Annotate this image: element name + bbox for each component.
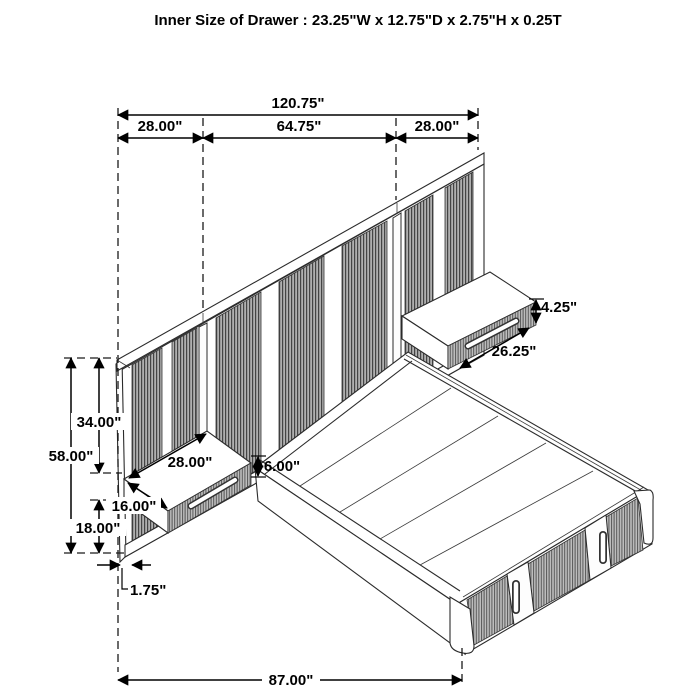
drawing-title: Inner Size of Drawer : 23.25"W x 12.75"D… [154,12,561,29]
dim-label-shelf-depth: 16.00" [112,498,157,515]
dim-label-left-panel-width: 28.00" [138,118,183,135]
dim-label-center-panel-width: 64.75" [277,118,322,135]
dim-label-right-panel-width: 28.00" [415,118,460,135]
dim-label-total-width: 120.75" [272,95,325,112]
dim-label-panel-thickness: 1.75" [130,582,166,599]
dim-label-left-shelf-width: 28.00" [168,454,213,471]
dim-label-bed-length: 87.00" [269,672,314,689]
dim-label-top-to-shelf: 34.00" [77,414,122,431]
dim-label-shelf-to-bottom: 18.00" [76,520,121,537]
technical-drawing-page: 120.75" 28.00" 64.75" 28.00" 58.00" 34.0… [0,0,700,700]
dim-label-shelf-height: 6.00" [264,458,300,475]
furniture-dimension-diagram: 120.75" 28.00" 64.75" 28.00" 58.00" 34.0… [0,0,700,700]
dim-label-right-shelf-height: 4.25" [541,299,577,316]
dim-label-headboard-height: 58.00" [49,448,94,465]
dim-label-right-shelf-width: 26.25" [492,343,537,360]
